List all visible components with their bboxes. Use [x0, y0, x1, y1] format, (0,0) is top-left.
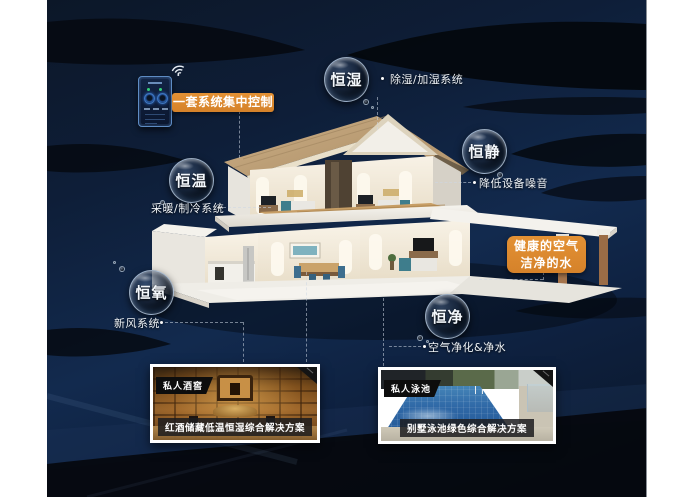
bubble-constant-purity: 恒净 [425, 294, 470, 339]
label-purify-system: 空气净化&净水 [428, 339, 506, 355]
bubble-label: 恒湿 [330, 69, 362, 90]
infographic-poster: 一套系统集中控制 健康的空气 洁净的水 恒湿 恒静 恒温 恒氧 恒净 [0, 0, 700, 497]
connector-winecellar [306, 272, 307, 362]
bubble-label: 恒净 [431, 306, 463, 327]
anchor-dot-freshair [160, 321, 163, 324]
central-control-label: 一套系统集中控制 [172, 93, 274, 112]
highlight-line-1: 健康的空气 [507, 238, 586, 255]
thermostat-knob-left [144, 93, 155, 104]
infographic-canvas: 一套系统集中控制 健康的空气 洁净的水 恒湿 恒静 恒温 恒氧 恒净 [47, 0, 647, 497]
bubble-label: 恒氧 [135, 282, 167, 303]
wine-cellar-photo: 私人酒窖 红酒储藏低温恒湿综合解决方案 [150, 364, 320, 443]
connector-freshair-v [243, 322, 244, 362]
connector-freshair-h [165, 322, 243, 323]
connector-highlight-v [543, 272, 544, 280]
pool-badge: 私人泳池 [384, 380, 441, 397]
label-humidity-system: 除湿/加湿系统 [390, 71, 463, 87]
connector-purify [389, 346, 421, 347]
label-temperature-system: 采暖/制冷系统 [151, 200, 224, 216]
wine-cellar-scene: 私人酒窖 红酒储藏低温恒湿综合解决方案 [153, 367, 317, 440]
connector-temperature [223, 207, 271, 208]
wifi-icon [171, 62, 187, 76]
anchor-dot-purify [423, 345, 426, 348]
smart-home-controller [138, 76, 172, 127]
bubble-label: 恒静 [468, 141, 500, 162]
anchor-dot-quiet [473, 181, 476, 184]
wine-cellar-caption: 红酒储藏低温恒湿综合解决方案 [158, 418, 312, 436]
bubble-constant-quiet: 恒静 [462, 129, 507, 174]
controller-screen [141, 79, 169, 124]
label-freshair-system: 新风系统 [114, 315, 160, 331]
bubble-label: 恒温 [175, 170, 207, 191]
connector-humidity [377, 97, 378, 130]
bubble-constant-oxygen: 恒氧 [129, 270, 174, 315]
label-quiet-system: 降低设备噪音 [479, 175, 548, 191]
bubble-constant-temperature: 恒温 [169, 158, 214, 203]
anchor-dot-humidity [381, 77, 384, 80]
thermostat-knob-right [157, 93, 168, 104]
connector-quiet [435, 182, 471, 183]
wine-cellar-badge: 私人酒窖 [156, 377, 213, 394]
pool-caption: 别墅泳池绿色综合解决方案 [400, 419, 534, 437]
healthy-air-water-box: 健康的空气 洁净的水 [507, 236, 586, 273]
highlight-line-2: 洁净的水 [507, 255, 586, 272]
pool-photo: 私人泳池 别墅泳池绿色综合解决方案 [378, 367, 556, 444]
connector-pool [383, 298, 384, 366]
pool-scene: 私人泳池 别墅泳池绿色综合解决方案 [381, 370, 553, 441]
connector-highlight-h [479, 279, 543, 280]
connector-control [239, 111, 240, 158]
bubble-constant-humidity: 恒湿 [324, 57, 369, 102]
